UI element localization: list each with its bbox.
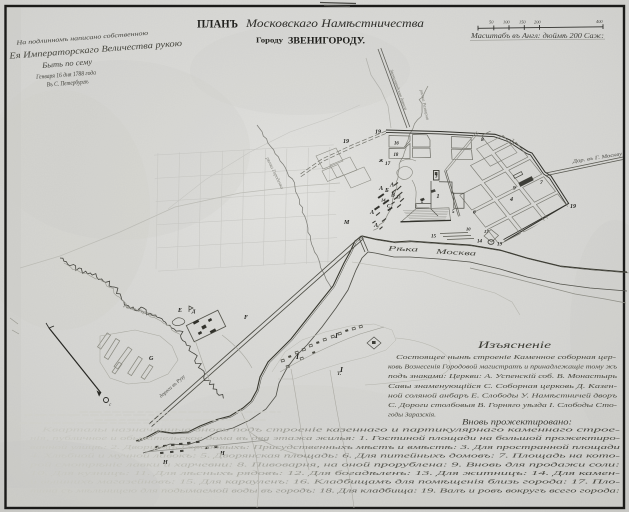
svg-text:9: 9 (513, 186, 516, 192)
svg-text:15: 15 (431, 235, 437, 240)
svg-text:тина съ мѣльницею для подымаем: тина съ мѣльницею для подымаемой воды въ… (30, 487, 620, 494)
svg-text:А: А (378, 185, 383, 192)
svg-text:3: 3 (434, 175, 438, 180)
svg-text:А: А (389, 182, 394, 189)
svg-text:19: 19 (375, 130, 381, 136)
svg-text:ПЛАНЪ: ПЛАНЪ (197, 19, 238, 31)
svg-text:18: 18 (394, 153, 399, 158)
svg-text:М: М (343, 220, 350, 226)
svg-text:10: 10 (466, 227, 471, 232)
svg-text:ковь Вознесенiя Городовой маги: ковь Вознесенiя Городовой магистратъ и п… (388, 364, 618, 371)
svg-text:ЗВЕНИГОРОДУ.: ЗВЕНИГОРОДУ. (288, 37, 365, 47)
svg-text:Городу: Городу (256, 37, 284, 45)
svg-text:8: 8 (481, 137, 484, 143)
svg-text:Д: Д (191, 310, 196, 315)
svg-text:1: 1 (437, 194, 440, 200)
svg-text:150: 150 (519, 20, 526, 25)
svg-text:нiя, публичное и обывательское: нiя, публичное и обывательское дома въ д… (30, 435, 620, 442)
svg-text:Московскаго Намѣстничества: Московскаго Намѣстничества (245, 18, 424, 30)
svg-text:F: F (244, 315, 248, 321)
svg-text:6: 6 (473, 210, 476, 216)
svg-text:10. Для кузницъ: 11. Для лѣсн: 10. Для кузницъ: 11. Для лѣсныхъ рядовъ:… (30, 470, 620, 477)
svg-text:16: 16 (394, 142, 399, 147)
svg-text:ной соляной анбаръ Е. Слободы: ной соляной анбаръ Е. Слободы У. Намѣстн… (388, 392, 618, 399)
svg-text:14: 14 (477, 240, 483, 245)
svg-text:А: А (369, 209, 374, 216)
svg-text:Савы знаменующiйся С. Соборна: Савы знаменующiйся С. Соборная церковь Д… (388, 383, 617, 390)
svg-text:Рѣка: Рѣка (386, 244, 419, 253)
svg-text:100: 100 (503, 20, 510, 25)
svg-text:Вновь прожектировано:: Вновь прожектировано: (462, 418, 572, 427)
svg-text:Кварталы назначенные вновь под: Кварталы назначенные вновь подъ строенiе… (40, 427, 620, 434)
svg-text:13: 13 (396, 195, 401, 200)
svg-text:В: В (390, 193, 395, 199)
svg-text:А: А (373, 222, 378, 229)
svg-text:17: 17 (385, 161, 391, 167)
svg-text:и вышнихъ магазейновъ: 15. Дл: и вышнихъ магазейновъ: 15. Для карауленъ… (30, 479, 620, 486)
svg-text:Ж: Ж (378, 158, 384, 163)
svg-text:400: 400 (596, 19, 603, 24)
svg-text:Т.: Т. (337, 371, 341, 377)
svg-text:С. Дороги столбовыя В. Горняг: С. Дороги столбовыя В. Горняго уѣзда I. … (388, 402, 617, 409)
svg-text:Б: Б (384, 188, 389, 194)
svg-text:Масштабъ въ Англ: дюймѣ 200 Са: Масштабъ въ Англ: дюймѣ 200 Саж: (470, 32, 604, 40)
svg-text:Состоящее нынѣ строенiе Камен: Состоящее нынѣ строенiе Каменное соборна… (396, 354, 616, 361)
svg-text:ванной улицѣ: 2. Дворцамъ Го: ванной улицѣ: 2. Дворцамъ Городовыхъ: Пр… (30, 444, 620, 451)
svg-text:19: 19 (497, 243, 503, 248)
svg-text:2: 2 (420, 200, 424, 205)
svg-text:G: G (149, 356, 154, 362)
svg-text:14: 14 (381, 198, 386, 203)
svg-text:19: 19 (570, 204, 576, 210)
svg-text:Е: Е (177, 308, 182, 314)
svg-text:рой смотрѣнiе лавки и харчевни: рой смотрѣнiе лавки и харчевни: 8. Пивов… (28, 461, 620, 468)
svg-text:4: 4 (509, 197, 513, 203)
svg-text:годы Заразскiя.: годы Заразскiя. (388, 412, 436, 419)
svg-text:200: 200 (534, 20, 541, 25)
svg-text:подъ знаками: Церкви: А. Усп: подъ знаками: Церкви: А. Успенскiй соб. … (388, 373, 617, 380)
svg-text:7: 7 (540, 180, 543, 186)
svg-text:Изъясненiе: Изъясненiе (476, 341, 551, 351)
svg-text:19: 19 (343, 139, 349, 145)
svg-text:4. Хлѣбной и мучной лавокъ: 5: 4. Хлѣбной и мучной лавокъ: 5. Дворянска… (30, 453, 620, 460)
